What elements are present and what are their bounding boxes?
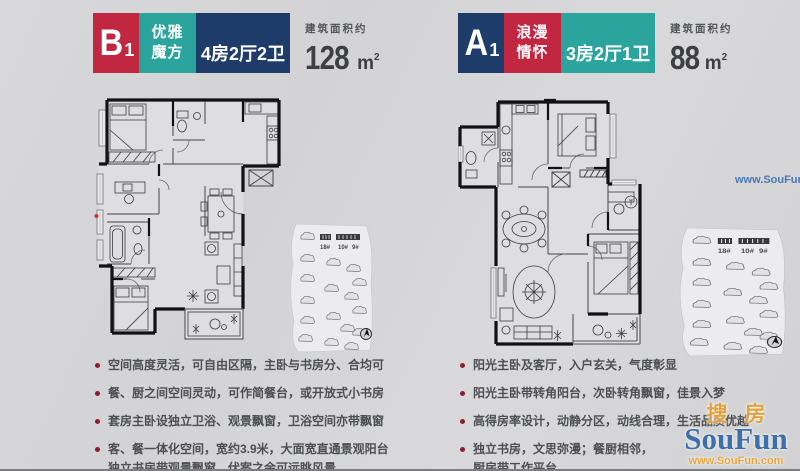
feature-line: 空间高度灵活，可自由区隔，主卧与书房分、合均可 [108, 356, 384, 375]
floorplan-b1 [93, 96, 283, 348]
feature-list-b1: 空间高度灵活，可自由区隔，主卧与书房分、合均可 餐、厨之间空间灵动，可作简餐台，… [95, 356, 403, 471]
unit-rooms-badge: 3房2厅1卫 [561, 13, 655, 73]
unit-rooms-badge: 4房2厅2卫 [196, 13, 290, 73]
bullet-dot [95, 391, 100, 396]
unit-code-sub: 1 [489, 40, 499, 61]
unit-header-b1: B1 优雅魔方 4房2厅2卫 [93, 13, 290, 73]
area-value: 128 [305, 39, 349, 77]
unit-code: B [99, 22, 123, 64]
site-label: 18# [718, 249, 731, 255]
unit-name-line1: 浪漫 [516, 23, 548, 43]
feature-line: 套房主卧设独立卫浴、观景飘窗，卫浴空间亦带飘窗 [108, 412, 384, 431]
feature-item: 餐、厨之间空间灵动，可作简餐台，或开放式小书房 [95, 384, 403, 403]
red-marker-dot [95, 214, 99, 218]
floorplan-brochure: B1 优雅魔方 4房2厅2卫 建筑面积约 128m2 [0, 0, 800, 471]
site-sketch-b1: 18# 10# 9# [286, 222, 376, 354]
bullet-dot [95, 447, 100, 452]
area-superscript: 2 [374, 52, 380, 63]
site-label: 10# [338, 245, 349, 251]
area-number: 128m2 [305, 39, 380, 77]
area-label: 建筑面积约 [305, 21, 380, 36]
unit-code-badge: A1 [458, 13, 504, 73]
area-label: 建筑面积约 [670, 21, 733, 36]
unit-name-badge: 优雅魔方 [139, 13, 196, 73]
feature-line: 客、餐一体化空间，宽约3.9米，大面宽直通景观阳台 [108, 440, 389, 459]
floorplan-a1 [458, 96, 648, 348]
compass-icon [767, 337, 781, 348]
area-unit: m [357, 53, 374, 74]
unit-name-line2: 情怀 [516, 43, 548, 63]
site-label: 18# [320, 245, 331, 251]
bullet-dot [460, 391, 465, 396]
feature-line: 餐、厨之间空间灵动，可作简餐台，或开放式小书房 [108, 384, 384, 403]
watermark-url-top: www.SouFun.com [735, 174, 800, 186]
unit-code-badge: B1 [93, 13, 139, 73]
feature-item: 阳光主卧及客厅，入户玄关，气度彰显 [460, 356, 768, 375]
unit-name-badge: 浪漫情怀 [504, 13, 561, 73]
feature-item: 空间高度灵活，可自由区隔，主卧与书房分、合均可 [95, 356, 403, 375]
area-number: 88m2 [670, 39, 733, 77]
bullet-dot [460, 447, 465, 452]
site-label: 10# [741, 249, 754, 255]
unit-area-a1: 建筑面积约 88m2 [670, 21, 733, 77]
bullet-dot [95, 419, 100, 424]
soufun-logo-en: SouFun [676, 424, 796, 454]
feature-item: 客、餐一体化空间，宽约3.9米，大面宽直通景观阳台独立书房带观景飘窗，伏案之余可… [95, 440, 403, 471]
feature-line: 独立书房，文思弥漫；餐厨相邻， [473, 440, 653, 459]
unit-panel-b1: B1 优雅魔方 4房2厅2卫 建筑面积约 128m2 [93, 0, 408, 471]
area-unit: m [705, 53, 722, 74]
unit-name-line2: 魔方 [151, 43, 183, 63]
bullet-dot [460, 363, 465, 368]
unit-code: A [464, 22, 488, 64]
feature-line: 阳光主卧及客厅，入户玄关，气度彰显 [473, 356, 677, 375]
bullet-dot [460, 419, 465, 424]
area-superscript: 2 [722, 52, 728, 63]
site-label: 9# [759, 249, 768, 255]
bullet-dot [95, 363, 100, 368]
feature-item: 套房主卧设独立卫浴、观景飘窗，卫浴空间亦带飘窗 [95, 412, 403, 431]
site-label: 9# [352, 245, 359, 251]
unit-header-a1: A1 浪漫情怀 3房2厅1卫 [458, 13, 655, 73]
area-value: 88 [670, 39, 699, 77]
unit-code-sub: 1 [124, 40, 134, 61]
unit-name-line1: 优雅 [151, 23, 183, 43]
soufun-watermark: 搜 房 SouFun www.SouFun.com [676, 398, 796, 467]
unit-area-b1: 建筑面积约 128m2 [305, 21, 380, 77]
compass-icon [361, 329, 372, 340]
site-sketch-a1: 18# 10# 9# [674, 226, 790, 358]
soufun-logo-url: www.SouFun.com [676, 455, 796, 467]
